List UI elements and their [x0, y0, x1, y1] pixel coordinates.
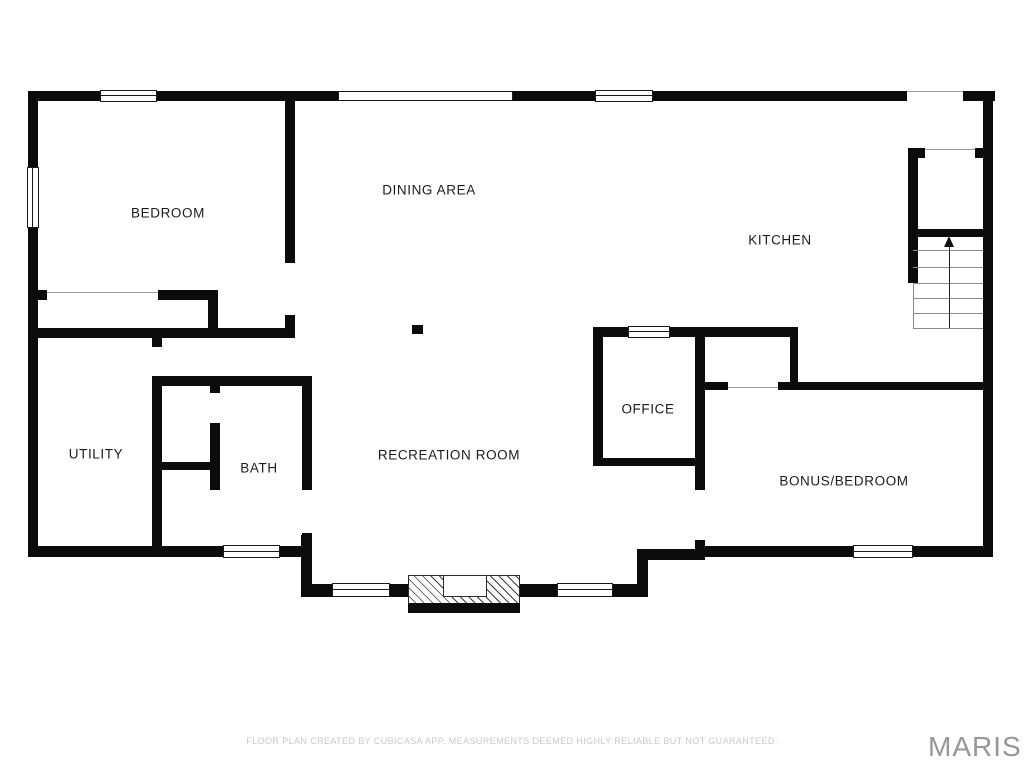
wall-segment: [152, 376, 162, 546]
wall-segment: [983, 91, 993, 557]
fireplace-firebox: [443, 575, 487, 597]
room-label-utility: UTILITY: [69, 447, 123, 462]
fireplace-outer-wall: [408, 603, 520, 613]
window: [332, 583, 390, 597]
maris-watermark: MARIS: [928, 731, 1022, 763]
window: [27, 167, 39, 228]
wall-segment: [210, 423, 220, 490]
stair-tread-line: [913, 328, 983, 329]
wall-segment: [670, 327, 798, 337]
wall-segment: [695, 540, 705, 557]
wall-segment: [28, 328, 295, 338]
wall-segment: [695, 546, 853, 557]
stair-tread-line: [913, 267, 983, 268]
wall-segment: [158, 462, 212, 470]
stair-tread-line: [913, 250, 983, 251]
footer-disclaimer: FLOOR PLAN CREATED BY CUBICASA APP. MEAS…: [0, 736, 1024, 746]
wall-segment: [913, 546, 993, 557]
wall-segment: [302, 376, 312, 490]
wall-segment: [28, 91, 100, 101]
wall-segment: [210, 386, 220, 393]
door-opening-line: [47, 292, 158, 293]
window: [595, 90, 653, 102]
floorplan-canvas: BEDROOMDINING AREAKITCHENUTILITYBATHOFFI…: [0, 0, 1024, 768]
room-label-dining-area: DINING AREA: [382, 183, 476, 198]
room-label-kitchen: KITCHEN: [748, 233, 811, 248]
wall-segment: [152, 338, 162, 347]
support-column: [412, 325, 423, 334]
door-opening-line: [925, 149, 975, 150]
wall-segment: [695, 382, 728, 390]
stair-tread-line: [913, 313, 983, 314]
wall-segment: [518, 584, 557, 597]
door-opening-line: [728, 387, 778, 388]
window: [100, 90, 157, 102]
wall-segment: [28, 91, 38, 167]
window: [338, 91, 513, 101]
wall-segment: [975, 148, 987, 158]
wall-segment: [28, 228, 38, 557]
wall-segment: [285, 101, 295, 263]
door-opening-line: [907, 91, 963, 92]
wall-segment: [152, 376, 312, 386]
wall-segment: [653, 91, 907, 101]
wall-segment: [908, 148, 925, 158]
room-label-bonus-bedroom: BONUS/BEDROOM: [779, 474, 908, 489]
room-label-recreation-room: RECREATION ROOM: [378, 448, 520, 463]
wall-segment: [593, 327, 603, 466]
wall-segment: [513, 91, 595, 101]
window: [223, 545, 280, 558]
room-label-office: OFFICE: [621, 402, 674, 417]
window: [853, 545, 913, 558]
stair-arrow-shaft: [949, 246, 950, 328]
window: [557, 583, 613, 597]
stair-up-arrow-icon: [944, 236, 954, 247]
wall-segment: [593, 458, 705, 466]
wall-segment: [157, 91, 338, 101]
stair-tread-line: [913, 283, 914, 328]
wall-segment: [28, 546, 223, 557]
wall-segment: [38, 290, 47, 300]
wall-segment: [301, 584, 332, 597]
stair-tread-line: [913, 298, 983, 299]
wall-segment: [790, 327, 798, 390]
window: [628, 326, 670, 338]
wall-segment: [908, 148, 918, 283]
wall-segment: [778, 382, 993, 390]
room-label-bath: BATH: [240, 461, 277, 476]
stair-tread-line: [913, 283, 983, 284]
room-label-bedroom: BEDROOM: [131, 206, 205, 221]
